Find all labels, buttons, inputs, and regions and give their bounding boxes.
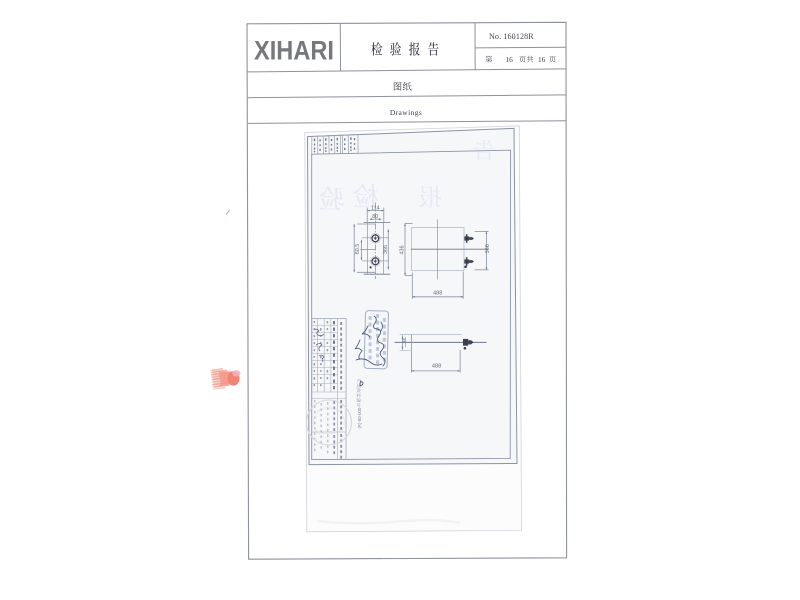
svg-text:34: 34 [402,338,407,344]
svg-text:366: 366 [383,245,389,254]
svg-text:436: 436 [400,245,406,254]
svg-text:80: 80 [372,214,378,220]
svg-text:(R)-00-000: (R)-00-000 [357,407,362,428]
svg-text:488: 488 [433,291,442,297]
svg-text:XIHARI: XIHARI [254,36,334,66]
svg-text:114: 114 [371,205,380,211]
svg-text:488: 488 [432,363,441,369]
svg-text:16: 16 [506,55,514,64]
svg-text:16: 16 [538,55,546,64]
svg-text:60.5: 60.5 [355,244,361,255]
svg-text:Drawings: Drawings [390,108,422,117]
svg-text:366: 366 [485,244,491,253]
svg-text:No. 160128R: No. 160128R [489,32,534,41]
